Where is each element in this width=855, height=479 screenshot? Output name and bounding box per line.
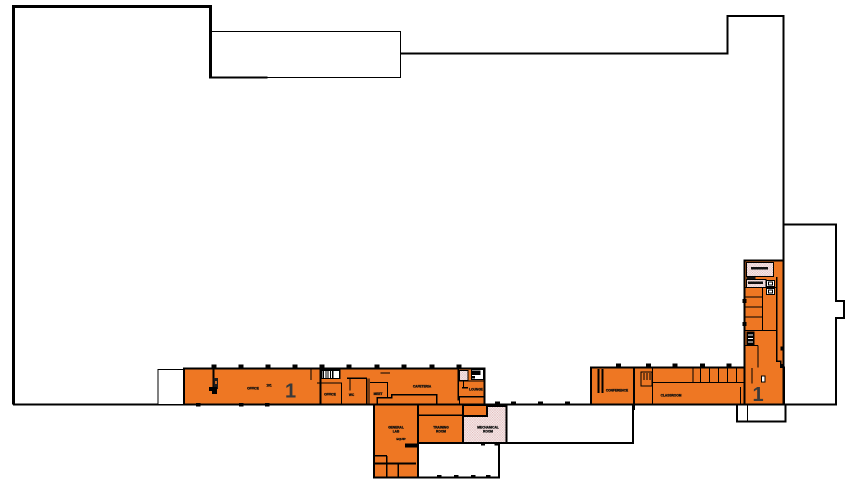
svg-text:OFFICE: OFFICE [247, 387, 259, 391]
svg-text:CLASSROOM: CLASSROOM [661, 393, 682, 397]
svg-text:ROOM: ROOM [483, 429, 493, 433]
svg-text:WC: WC [349, 393, 355, 397]
svg-text:101: 101 [266, 383, 272, 387]
svg-text:OFFICE: OFFICE [324, 392, 336, 396]
svg-text:LOUNGE: LOUNGE [469, 388, 483, 392]
svg-text:MEET: MEET [374, 392, 383, 396]
svg-text:1: 1 [285, 381, 296, 403]
svg-text:EQUIP: EQUIP [396, 437, 405, 441]
svg-text:ROOM: ROOM [436, 429, 446, 433]
svg-text:CONFERENCE: CONFERENCE [606, 388, 628, 392]
svg-text:1: 1 [752, 384, 763, 406]
svg-text:CAFETERIA: CAFETERIA [413, 385, 432, 389]
svg-text:LAB: LAB [393, 429, 400, 433]
